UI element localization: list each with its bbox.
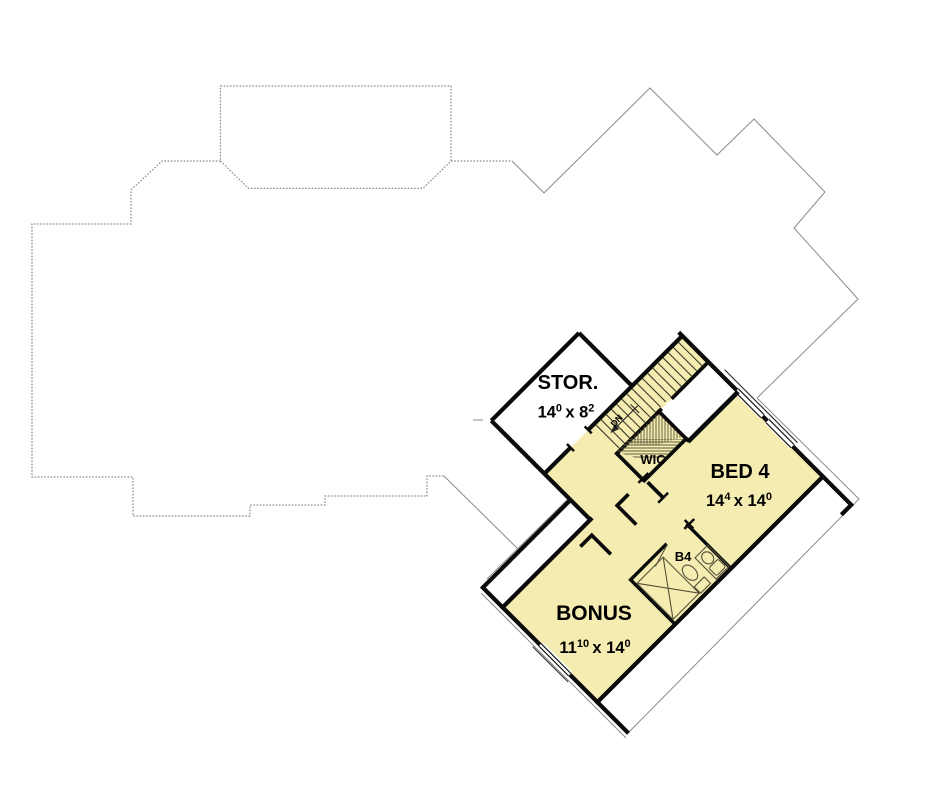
svg-text:1110 x 140: 1110 x 140 <box>559 638 630 657</box>
svg-text:140 x 82: 140 x 82 <box>538 403 595 422</box>
svg-text:BONUS: BONUS <box>556 602 632 625</box>
svg-text:144 x 140: 144 x 140 <box>706 491 772 510</box>
svg-text:STOR.: STOR. <box>538 372 599 394</box>
svg-text:B4: B4 <box>675 549 692 564</box>
svg-text:WIC: WIC <box>640 452 666 467</box>
svg-text:BED 4: BED 4 <box>711 461 771 483</box>
